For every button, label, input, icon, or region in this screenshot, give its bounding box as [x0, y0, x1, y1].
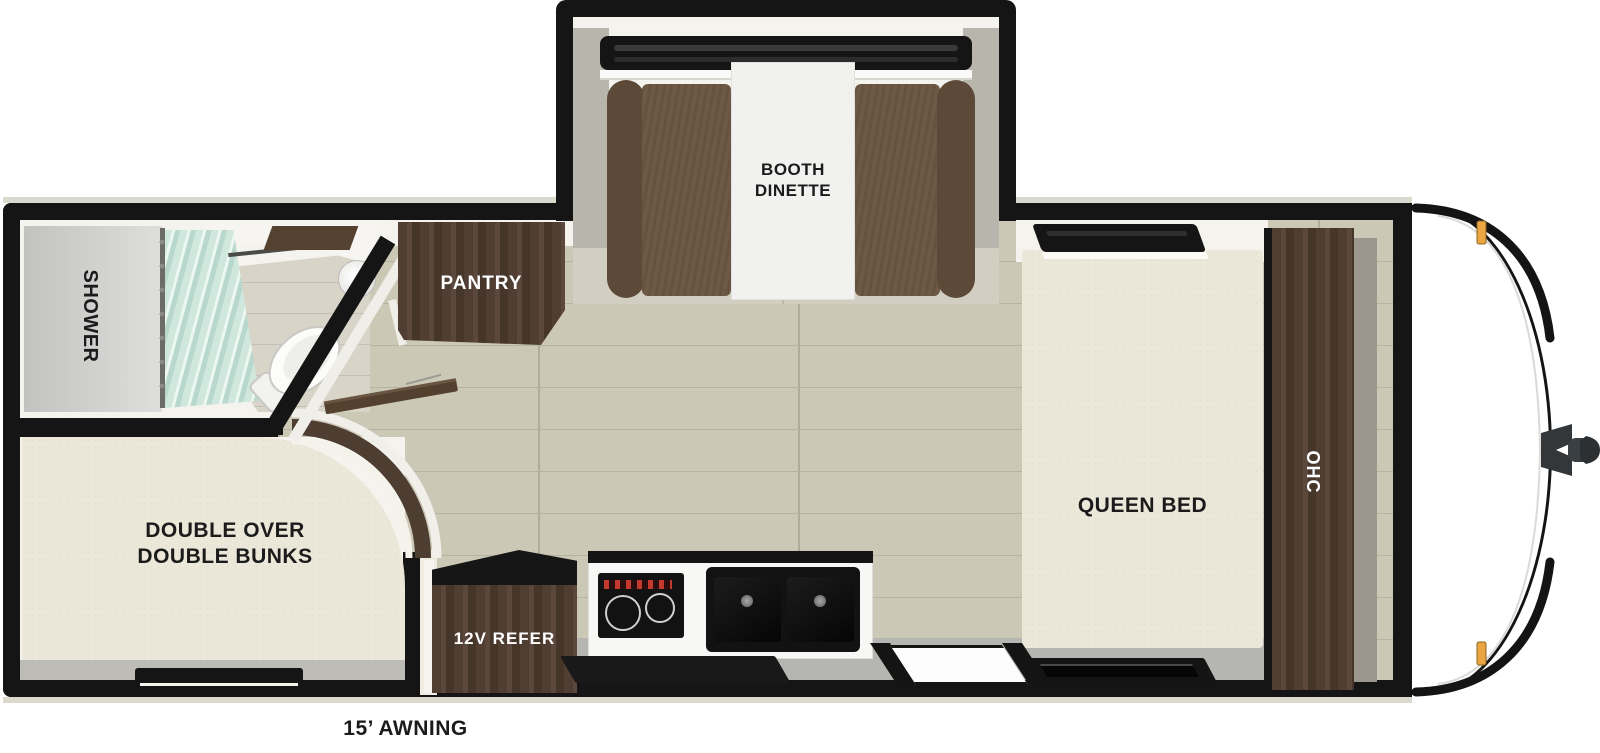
kitchen-counter-backsplash: [588, 551, 873, 563]
queen-bed: [1022, 250, 1263, 648]
ohc-label: OHC: [1300, 402, 1326, 542]
dinette-bench-left-back: [607, 80, 645, 298]
booth-dinette-label: BOOTH DINETTE: [755, 160, 831, 201]
queen-bed-label: QUEEN BED: [1040, 492, 1245, 520]
medicine-cabinet: [264, 226, 359, 250]
bunks-label-line1: DOUBLE OVER: [75, 518, 375, 544]
wall-right: [1393, 203, 1412, 697]
cooktop-control-strip: [604, 580, 672, 589]
refer-label: 12V REFER: [454, 629, 556, 649]
dinette-table: BOOTH DINETTE: [731, 62, 855, 300]
front-cap: [1412, 205, 1552, 695]
sink-faucet-left: [741, 595, 753, 607]
shower-label: SHOWER: [77, 246, 103, 386]
bed-window-slot: [1046, 231, 1188, 236]
dinette-bench-right-back: [937, 80, 975, 298]
pantry-label: PANTRY: [441, 273, 523, 295]
dinette-window-slot2: [614, 57, 958, 62]
booth-dinette-line2: DINETTE: [755, 181, 831, 202]
ohc-left-edge: [1264, 228, 1272, 690]
sink-basin-right: [787, 577, 854, 642]
bed-window: [1032, 224, 1206, 252]
booth-dinette-line1: BOOTH: [755, 160, 831, 181]
shower-label-text: SHOWER: [78, 270, 102, 363]
rv-floorplan: SHOWER DOUBLE OVER DOUBLE BUNKS QUEEN BE…: [0, 0, 1600, 753]
ohc-label-text: OHC: [1303, 451, 1324, 494]
door-side-window-slot: [1040, 664, 1199, 677]
bunk-window: [135, 668, 303, 683]
pantry-cabinet: PANTRY: [398, 222, 565, 345]
dinette-bench-right: [855, 84, 940, 296]
bunks-label-line2: DOUBLE BUNKS: [75, 544, 375, 570]
ohc-side-panel: [1354, 238, 1377, 682]
bunks-label: DOUBLE OVER DOUBLE BUNKS: [75, 518, 375, 569]
shower-curtain-rings: [155, 230, 169, 406]
vanity-sink-bowl: [338, 260, 376, 298]
counter-kick-strip: [560, 656, 791, 683]
bunk-top-wall: [3, 420, 278, 437]
queen-bed-label-text: QUEEN BED: [1078, 493, 1207, 519]
wall-left: [3, 203, 20, 697]
bed-window-sill: [1042, 252, 1209, 259]
dinette-bench-left: [642, 84, 731, 296]
awning-label: 15’ AWNING: [318, 716, 493, 742]
cooktop-burner-right: [645, 593, 675, 623]
sink-faucet-right: [814, 595, 826, 607]
cooktop-burner-left: [605, 595, 641, 631]
awning-label-text: 15’ AWNING: [343, 717, 467, 740]
dinette-window-slot: [614, 45, 958, 51]
refrigerator: 12V REFER: [432, 585, 577, 693]
exterior-trim-bottom: [3, 697, 1412, 703]
bunk-window-sill: [140, 683, 298, 686]
sink-basin-left: [714, 577, 781, 642]
